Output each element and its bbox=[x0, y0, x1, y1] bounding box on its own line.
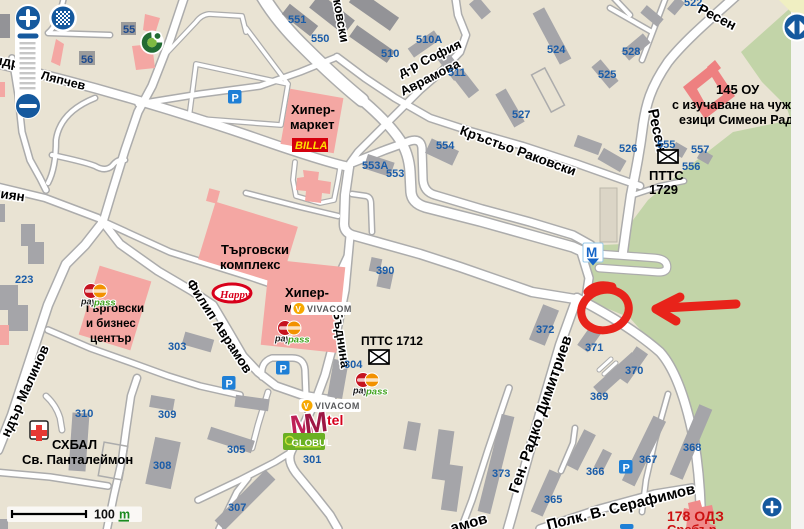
svg-text:VIVACOM: VIVACOM bbox=[307, 304, 352, 314]
svg-text:223: 223 bbox=[15, 274, 33, 286]
svg-text:pass: pass bbox=[365, 387, 388, 398]
svg-text:pass: pass bbox=[287, 335, 310, 346]
svg-text:369: 369 bbox=[590, 391, 608, 403]
svg-text:368: 368 bbox=[683, 442, 701, 454]
svg-text:P: P bbox=[280, 364, 287, 376]
svg-text:554: 554 bbox=[436, 140, 455, 152]
svg-text:373: 373 bbox=[492, 468, 510, 480]
svg-text:СХБАЛ: СХБАЛ bbox=[52, 437, 97, 452]
svg-text:304: 304 bbox=[344, 359, 363, 371]
svg-text:център: център bbox=[90, 333, 131, 345]
svg-text:с изучаване на чужди: с изучаване на чужди bbox=[672, 98, 804, 112]
svg-text:V: V bbox=[296, 305, 302, 314]
svg-text:522: 522 bbox=[684, 0, 702, 9]
svg-text:ПТТС 1712: ПТТС 1712 bbox=[361, 334, 423, 348]
svg-text:1729: 1729 bbox=[649, 182, 678, 197]
svg-text:510A: 510A bbox=[416, 34, 442, 46]
svg-text:553A: 553A bbox=[362, 160, 388, 172]
svg-text:525: 525 bbox=[598, 69, 616, 81]
svg-text:ПТТС: ПТТС bbox=[649, 168, 684, 183]
svg-text:m: m bbox=[119, 508, 130, 522]
svg-text:510: 510 bbox=[381, 48, 399, 60]
svg-text:55: 55 bbox=[123, 24, 135, 36]
svg-text:145 ОУ: 145 ОУ bbox=[716, 82, 760, 97]
svg-text:и бизнес: и бизнес bbox=[86, 318, 136, 330]
svg-text:tel: tel bbox=[327, 412, 343, 428]
svg-text:Сребър: Сребър bbox=[667, 522, 717, 529]
svg-text:370: 370 bbox=[625, 365, 643, 377]
svg-text:524: 524 bbox=[547, 44, 566, 56]
svg-text:езици Симеон Радев: езици Симеон Радев bbox=[679, 113, 804, 127]
svg-text:528: 528 bbox=[622, 46, 640, 58]
svg-text:526: 526 bbox=[619, 143, 637, 155]
svg-text:Търговски: Търговски bbox=[221, 242, 289, 257]
svg-text:P: P bbox=[232, 93, 239, 105]
svg-text:301: 301 bbox=[303, 454, 321, 466]
svg-text:372: 372 bbox=[536, 324, 554, 336]
svg-text:Св. Панталеймон: Св. Панталеймон bbox=[22, 452, 133, 467]
svg-text:366: 366 bbox=[586, 466, 604, 478]
svg-text:307: 307 bbox=[228, 502, 246, 514]
svg-text:305: 305 bbox=[227, 444, 245, 456]
svg-text:BILLA: BILLA bbox=[295, 140, 327, 152]
svg-text:371: 371 bbox=[585, 342, 603, 354]
svg-text:550: 550 bbox=[311, 33, 329, 45]
svg-text:556: 556 bbox=[682, 161, 700, 173]
svg-text:553: 553 bbox=[386, 168, 404, 180]
svg-text:Happy: Happy bbox=[219, 289, 250, 301]
svg-text:Хипер-: Хипер- bbox=[285, 285, 329, 300]
svg-text:310: 310 bbox=[75, 408, 93, 420]
svg-text:М: М bbox=[586, 245, 597, 260]
svg-text:551: 551 bbox=[288, 14, 306, 26]
svg-text:390: 390 bbox=[376, 265, 394, 277]
svg-text:365: 365 bbox=[544, 494, 562, 506]
svg-text:P: P bbox=[226, 379, 233, 391]
svg-text:308: 308 bbox=[153, 460, 171, 472]
svg-text:557: 557 bbox=[691, 144, 709, 156]
svg-text:309: 309 bbox=[158, 409, 176, 421]
svg-text:100: 100 bbox=[94, 508, 115, 522]
svg-text:комплекс: комплекс bbox=[220, 257, 280, 272]
svg-text:527: 527 bbox=[512, 109, 530, 121]
svg-text:367: 367 bbox=[639, 454, 657, 466]
svg-text:Хипер-: Хипер- bbox=[291, 102, 335, 117]
svg-text:P: P bbox=[623, 463, 630, 475]
svg-text:56: 56 bbox=[81, 54, 93, 66]
svg-text:pass: pass bbox=[93, 298, 116, 309]
svg-text:511: 511 bbox=[448, 67, 466, 79]
svg-text:303: 303 bbox=[168, 341, 186, 353]
svg-text:маркет: маркет bbox=[290, 117, 335, 132]
